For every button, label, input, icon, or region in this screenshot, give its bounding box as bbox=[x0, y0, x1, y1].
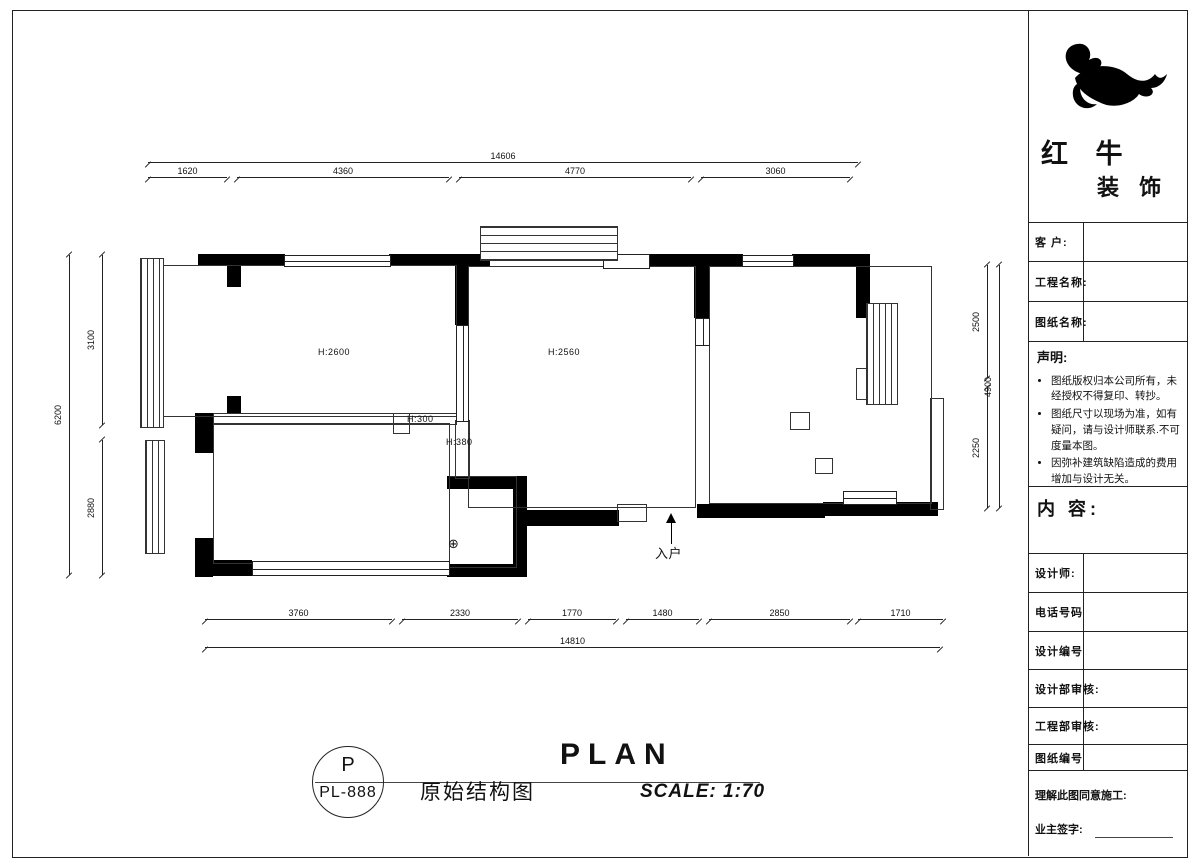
room-height-label: H:300 bbox=[407, 414, 434, 424]
field-row-design-dept-review: 设计部审核: bbox=[1029, 669, 1187, 707]
field-label: 电话号码 bbox=[1035, 604, 1083, 620]
entrance-arrow-line bbox=[671, 522, 672, 544]
statement-item: 图纸版权归本公司所有，未经授权不得复印、转抄。 bbox=[1051, 374, 1181, 406]
room-outline bbox=[162, 265, 457, 417]
field-label: 图纸编号 bbox=[1035, 750, 1083, 766]
interior-wall bbox=[455, 420, 470, 479]
statement-heading: 声明: bbox=[1037, 348, 1185, 368]
dimension-bottom-total: 14810 bbox=[205, 634, 940, 648]
field-label: 工程名称: bbox=[1035, 274, 1088, 290]
dimension-top-total: 14606 bbox=[148, 149, 858, 163]
dimension-bottom-segment: 3760 bbox=[205, 606, 392, 620]
field-row-project-name: 工程名称: bbox=[1029, 261, 1187, 301]
room-height-label: H:380 bbox=[446, 437, 473, 447]
dimension-top-segment: 3060 bbox=[701, 164, 850, 178]
dimension-top-segment: 4360 bbox=[237, 164, 449, 178]
thin-wall bbox=[930, 398, 944, 510]
brand-subtitle: 装 饰 bbox=[1097, 170, 1168, 202]
statement-list: 图纸版权归本公司所有，未经授权不得复印、转抄。 图纸尺寸以现场为准，如有疑问，请… bbox=[1039, 374, 1185, 488]
drawing-scale: SCALE: 1:70 bbox=[640, 781, 765, 803]
bay-window bbox=[866, 303, 898, 405]
dimension-left-segment: 2880 bbox=[89, 440, 103, 575]
door-jamb bbox=[815, 458, 833, 474]
signature-cell: 理解此图同意施工: 业主签字: bbox=[1029, 770, 1187, 856]
dimension-bottom-segment: 1480 bbox=[626, 606, 699, 620]
brand-cell: 红 牛 装 饰 bbox=[1029, 10, 1187, 222]
field-label: 设计部审核: bbox=[1035, 681, 1100, 697]
dimension-top-segment: 4770 bbox=[459, 164, 691, 178]
signature-line bbox=[1095, 837, 1173, 838]
dimension-left-total: 6200 bbox=[56, 255, 70, 575]
field-row-customer: 客 户: bbox=[1029, 222, 1187, 261]
dimension-bottom-segment: 1770 bbox=[528, 606, 616, 620]
bay-window bbox=[480, 226, 618, 261]
window bbox=[843, 491, 897, 505]
statement-item: 图纸尺寸以现场为准，如有疑问，请与设计师联系.不可度量本图。 bbox=[1051, 407, 1181, 454]
field-label: 工程部审核: bbox=[1035, 718, 1100, 734]
entry-step bbox=[617, 504, 647, 522]
field-label: 设计编号 bbox=[1035, 643, 1083, 659]
wall-opening bbox=[695, 318, 710, 346]
statement-item: 因弥补建筑缺陷造成的费用增加与设计无关。 bbox=[1051, 456, 1181, 488]
wall-segment bbox=[527, 510, 619, 526]
redbull-logo-icon bbox=[1047, 38, 1172, 133]
entrance-arrow-head bbox=[666, 513, 676, 523]
drawing-title-cn: 原始结构图 bbox=[420, 776, 535, 806]
wall-opening bbox=[456, 325, 469, 422]
bay-window bbox=[145, 440, 165, 554]
wall-segment bbox=[697, 504, 825, 518]
owner-signature-label: 业主签字: bbox=[1035, 821, 1083, 837]
window bbox=[284, 255, 391, 267]
drawing-sheet: H:2600 H:2560 H:300 H:380 ⊕ 入户 14606 162… bbox=[0, 0, 1200, 868]
field-label: 设计师: bbox=[1035, 565, 1076, 581]
field-row-design-number: 设计编号 bbox=[1029, 631, 1187, 669]
field-row-phone: 电话号码 bbox=[1029, 592, 1187, 631]
dimension-bottom-segment: 2330 bbox=[402, 606, 518, 620]
dimension-left-segment: 3100 bbox=[89, 255, 103, 425]
room-height-label: H:2600 bbox=[318, 347, 350, 357]
drawing-title-en: PLAN bbox=[560, 738, 674, 772]
wall-segment bbox=[647, 254, 743, 266]
window bbox=[742, 255, 794, 267]
content-cell: 内 容: bbox=[1029, 486, 1187, 553]
brand-name: 红 牛 bbox=[1041, 132, 1133, 171]
wall-segment bbox=[195, 413, 213, 453]
entrance-label: 入户 bbox=[655, 543, 682, 562]
construction-agreement-label: 理解此图同意施工: bbox=[1035, 787, 1127, 803]
dimension-bottom-segment: 2850 bbox=[709, 606, 850, 620]
drawing-number: PL-888 bbox=[313, 784, 383, 802]
bay-window bbox=[140, 258, 164, 428]
field-label: 图纸名称: bbox=[1035, 314, 1088, 330]
wall-segment bbox=[694, 266, 709, 318]
field-label: 客 户: bbox=[1035, 234, 1068, 250]
room-height-label: H:2560 bbox=[548, 347, 580, 357]
content-heading: 内 容: bbox=[1037, 495, 1100, 521]
dimension-right-total: 4900 bbox=[986, 265, 1000, 508]
field-row-drawing-number: 图纸编号 bbox=[1029, 744, 1187, 770]
title-block: 红 牛 装 饰 客 户: 工程名称: 图纸名称: 声明: 图纸版权归本公司所有，… bbox=[1028, 10, 1187, 856]
field-row-engineering-dept-review: 工程部审核: bbox=[1029, 707, 1187, 744]
statement-cell: 声明: 图纸版权归本公司所有，未经授权不得复印、转抄。 图纸尺寸以现场为准，如有… bbox=[1029, 341, 1187, 486]
room-outline bbox=[468, 266, 696, 508]
drawing-tag-circle: P PL-888 bbox=[312, 746, 384, 818]
door-jamb bbox=[790, 412, 810, 430]
room-outline bbox=[449, 476, 517, 568]
drawing-tag-letter: P bbox=[313, 754, 383, 777]
room-outline bbox=[213, 423, 450, 564]
window bbox=[252, 561, 450, 576]
dimension-top-segment: 1620 bbox=[148, 164, 227, 178]
floor-drain-symbol: ⊕ bbox=[448, 536, 459, 552]
field-row-drawing-name: 图纸名称: bbox=[1029, 301, 1187, 341]
dimension-bottom-segment: 1710 bbox=[858, 606, 943, 620]
field-row-designer: 设计师: bbox=[1029, 553, 1187, 592]
